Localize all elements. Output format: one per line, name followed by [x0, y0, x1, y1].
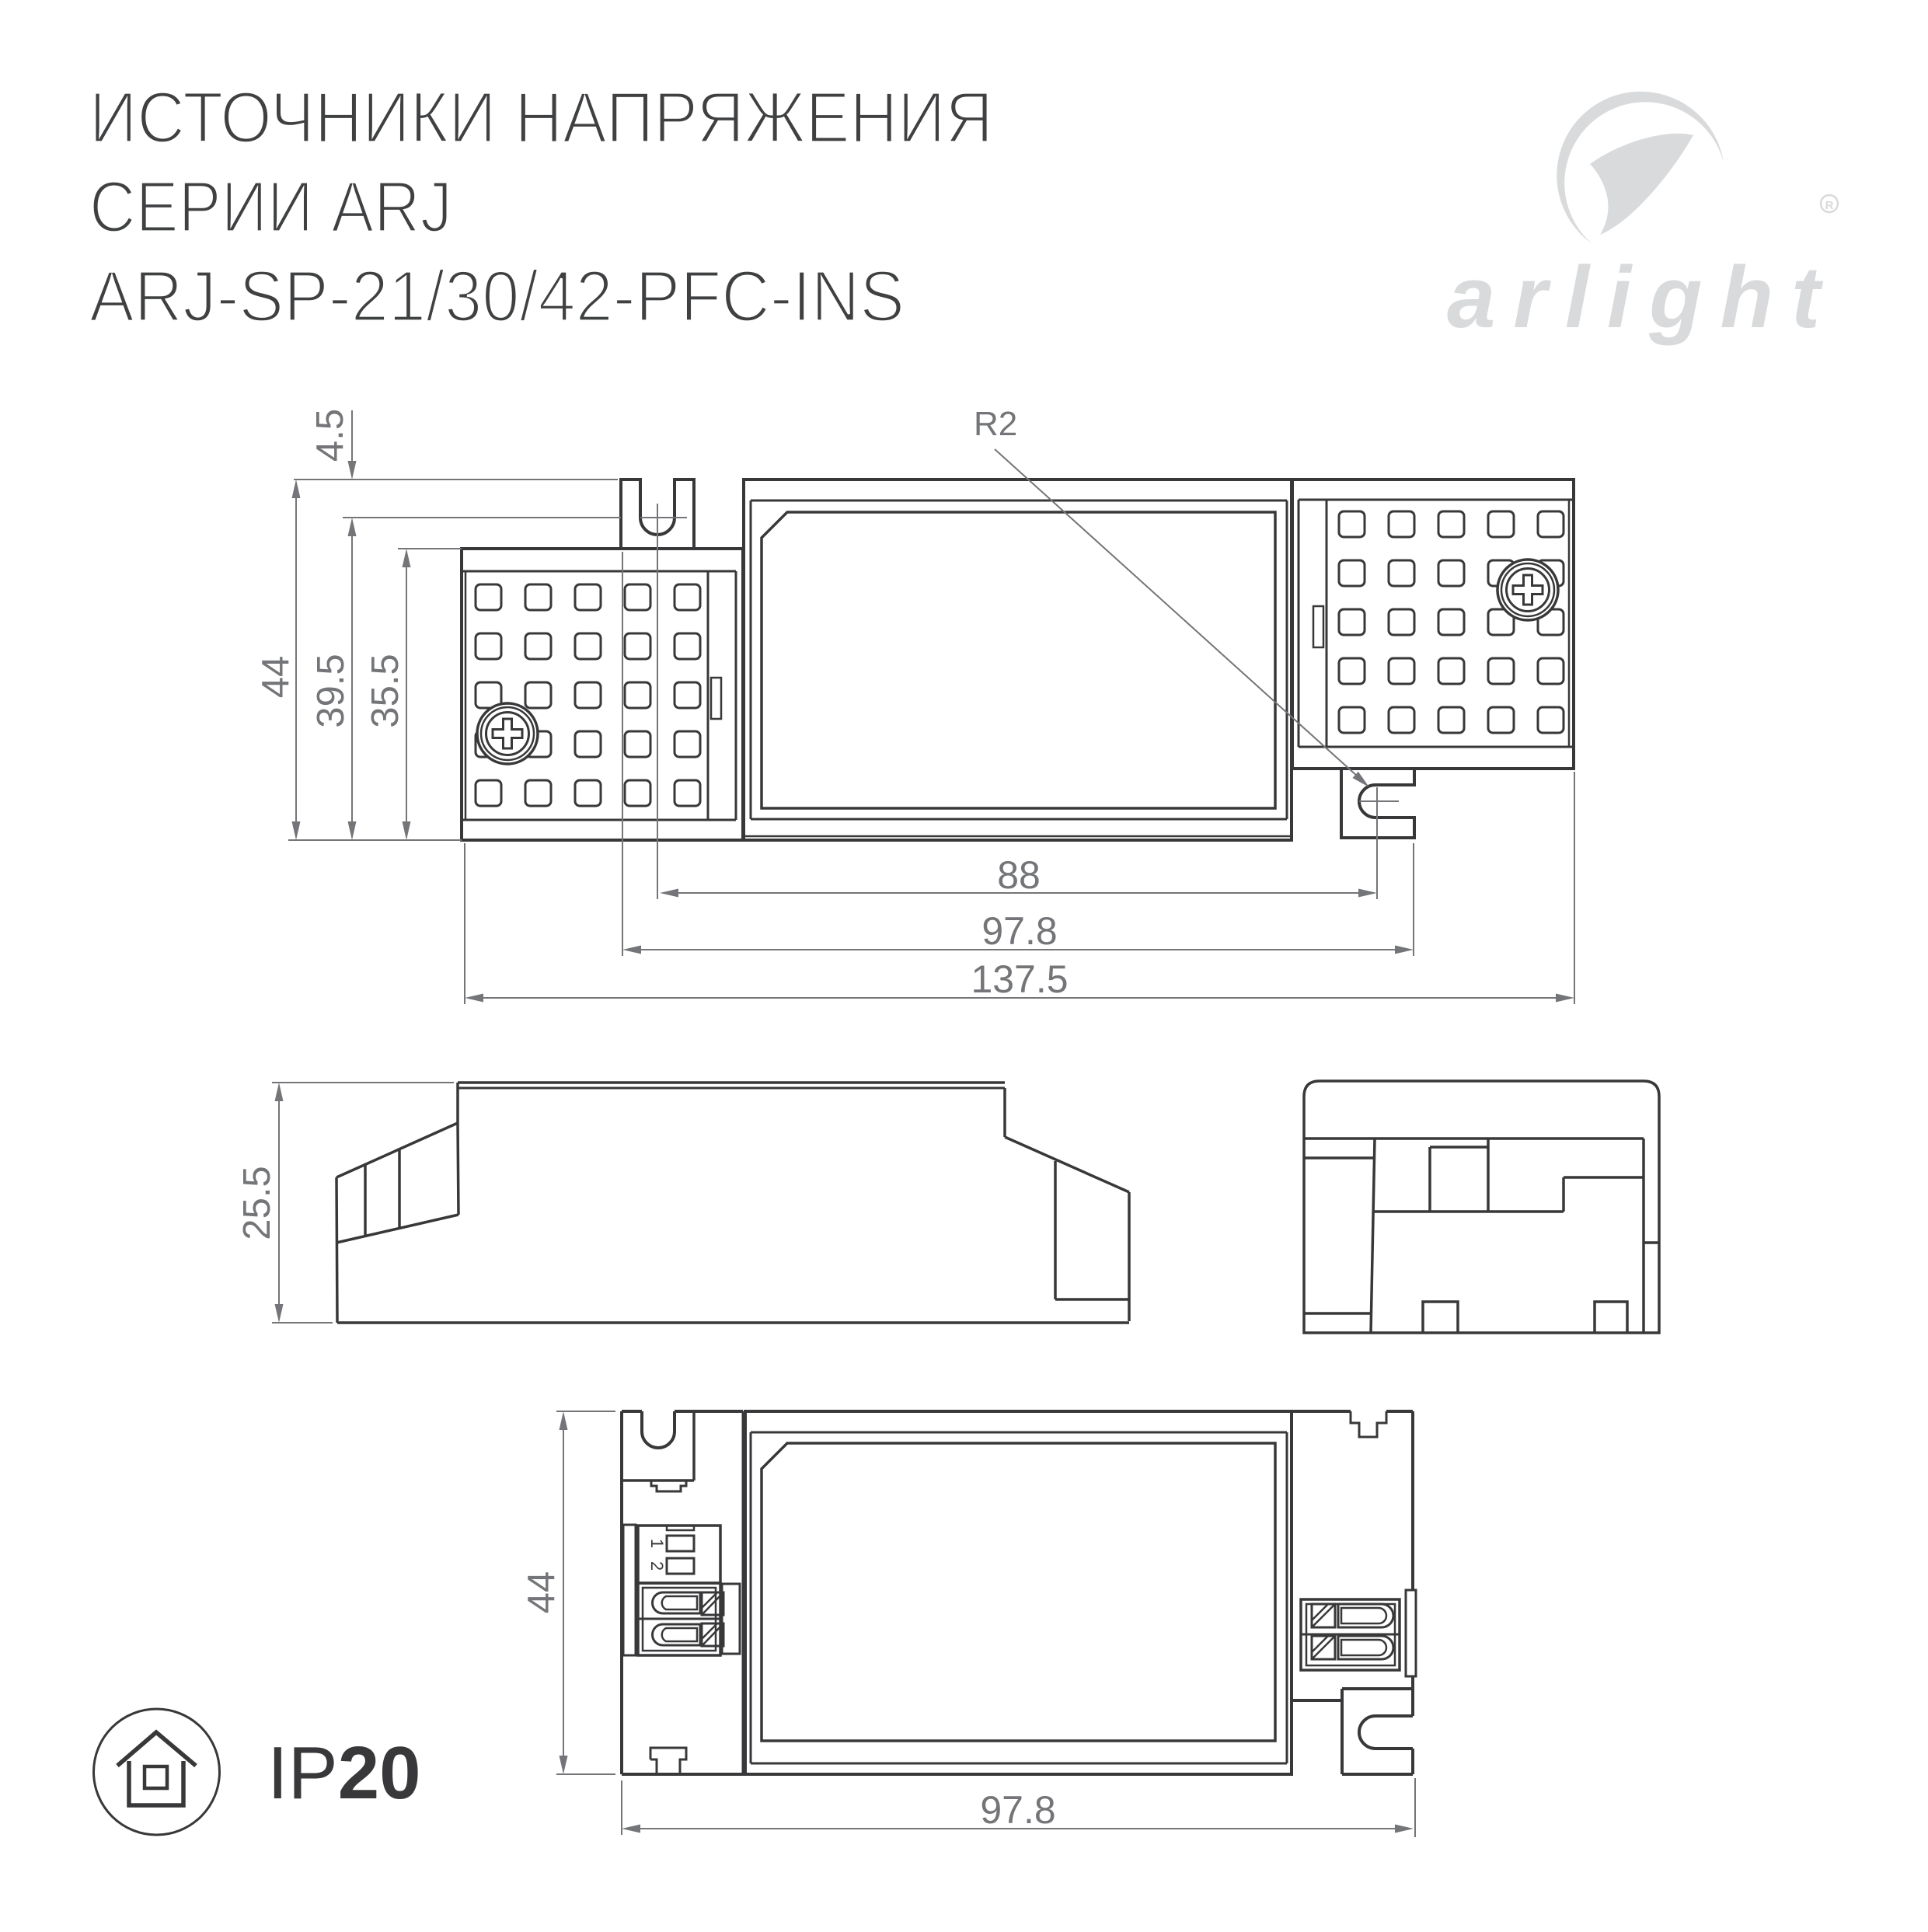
svg-text:ИСТОЧНИКИ НАПРЯЖЕНИЯ: ИСТОЧНИКИ НАПРЯЖЕНИЯ: [89, 77, 993, 158]
svg-text:88: 88: [997, 853, 1041, 897]
svg-text:R2: R2: [974, 405, 1017, 443]
svg-text:44: 44: [255, 656, 297, 699]
svg-text:97.8: 97.8: [981, 909, 1057, 953]
svg-text:137.5: 137.5: [971, 957, 1068, 1001]
svg-text:ARJ-SP-21/30/42-PFC-INS: ARJ-SP-21/30/42-PFC-INS: [89, 256, 905, 337]
svg-text:СЕРИИ ARJ: СЕРИИ ARJ: [89, 166, 452, 247]
svg-text:IP20: IP20: [267, 1731, 420, 1815]
svg-text:25.5: 25.5: [236, 1166, 278, 1240]
svg-text:35.5: 35.5: [364, 654, 406, 727]
svg-text:R: R: [1825, 199, 1834, 212]
svg-text:4.5: 4.5: [309, 409, 351, 462]
svg-text:97.8: 97.8: [980, 1788, 1055, 1832]
svg-text:39.5: 39.5: [310, 654, 352, 727]
svg-text:2: 2: [647, 1561, 667, 1571]
svg-text:arlight: arlight: [1447, 249, 1838, 346]
svg-text:1: 1: [647, 1539, 667, 1548]
svg-text:44: 44: [521, 1571, 563, 1614]
